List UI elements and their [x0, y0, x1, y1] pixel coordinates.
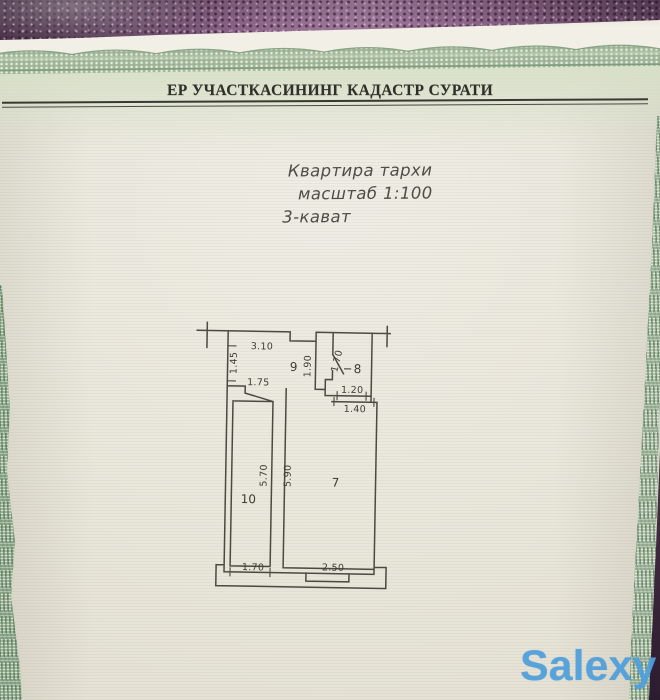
photo-of-cadastral-document: ЕР УЧАСТКАСИНИНГ КАДАСТР СУРАТИ Квартира…	[0, 0, 660, 700]
dim-left-room-height: 5.70	[258, 464, 269, 487]
caption-line-title: Квартира тархи	[288, 158, 433, 182]
dim-window-width: 2.50	[322, 562, 345, 573]
dim-left-height: 1.45	[228, 352, 239, 375]
room-label-9: 9	[290, 360, 298, 374]
document-paper: ЕР УЧАСТКАСИНИНГ КАДАСТР СУРАТИ Квартира…	[0, 0, 660, 700]
dim-bath-outer-width: 1.40	[344, 404, 367, 415]
salexy-watermark: Salexy	[520, 642, 656, 691]
guilloche-top-border-pattern	[0, 39, 660, 75]
caption-line-scale: масштаб 1:100	[298, 181, 433, 205]
dim-bath-door: 1.70	[329, 349, 345, 373]
plan-caption: Квартира тархи масштаб 1:100 3-кават	[282, 158, 433, 228]
dim-bath-width: 1.20	[341, 385, 364, 396]
room-label-7: 7	[332, 476, 340, 490]
dim-main-room-height: 5.90	[282, 465, 293, 488]
dim-hall-depth: 1.90	[302, 355, 313, 378]
dim-left-door: 1.75	[247, 377, 270, 388]
room-label-10: 10	[241, 492, 257, 506]
dim-top-width: 3.10	[251, 341, 274, 352]
room-label-8: 8	[354, 362, 362, 376]
floor-plan-drawing: 3.10 1.45 1.75 1.90 1.70 1.20 1.40 5.70 …	[190, 316, 402, 608]
document-header-title: ЕР УЧАСТКАСИНИНГ КАДАСТР СУРАТИ	[0, 82, 660, 100]
guilloche-top-border	[0, 39, 660, 75]
dim-left-room-width: 1.70	[242, 562, 265, 573]
caption-line-floor: 3-кават	[282, 204, 433, 228]
